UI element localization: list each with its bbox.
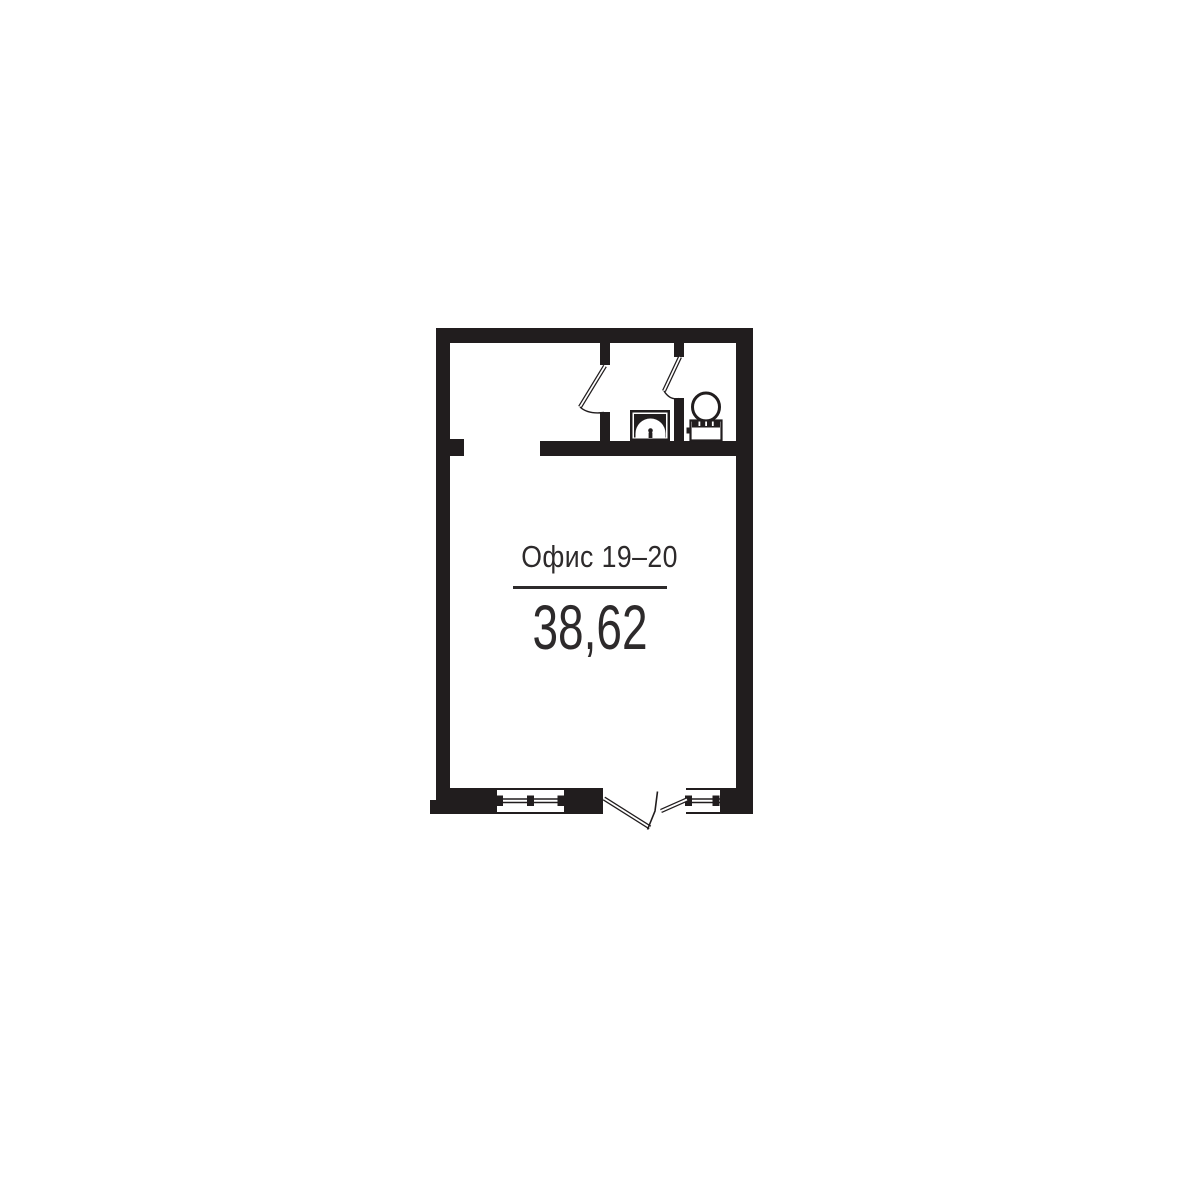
floorplan-canvas: Офис 19–20 38,62: [0, 0, 1184, 1184]
washroom-door-leaf-inner: [580, 366, 605, 407]
wc-door-leaf-inner: [664, 357, 680, 391]
bottom-wall-step: [430, 800, 437, 814]
top-wall: [436, 328, 753, 343]
toilet-icon: [687, 393, 722, 441]
unit-label-block: Офис 19–20 38,62: [510, 540, 670, 661]
toilet-band-tick: [712, 422, 714, 427]
window-mullion: [558, 796, 565, 807]
toilet-bowl: [693, 393, 720, 421]
entry-door-cut: [603, 788, 686, 816]
washroom-partition-upper: [600, 343, 610, 365]
window-mullion: [713, 796, 720, 807]
sink-icon: [630, 410, 670, 441]
wc-door: [664, 357, 680, 399]
toilet-flush-knob: [687, 428, 692, 434]
right-wall: [736, 328, 753, 814]
unit-name: Офис 19–20: [521, 540, 659, 574]
bathroom-south-wall: [540, 441, 736, 456]
toilet-band-tick: [699, 422, 701, 427]
wc-door-swing-arc: [664, 391, 679, 399]
sink-faucet-dot: [648, 428, 653, 433]
washroom-door: [580, 366, 605, 413]
wc-partition-upper: [674, 343, 684, 357]
washroom-partition-lower: [600, 412, 610, 443]
sink-faucet-stem: [649, 433, 653, 439]
vestibule-wall-stub: [450, 439, 464, 456]
unit-area: 38,62: [532, 595, 649, 661]
label-divider: [513, 586, 667, 589]
window-mullion: [496, 796, 503, 807]
toilet-band-tick: [705, 422, 707, 427]
window-mullion: [527, 796, 534, 807]
left-wall: [436, 328, 450, 813]
wc-partition-lower: [674, 398, 684, 443]
